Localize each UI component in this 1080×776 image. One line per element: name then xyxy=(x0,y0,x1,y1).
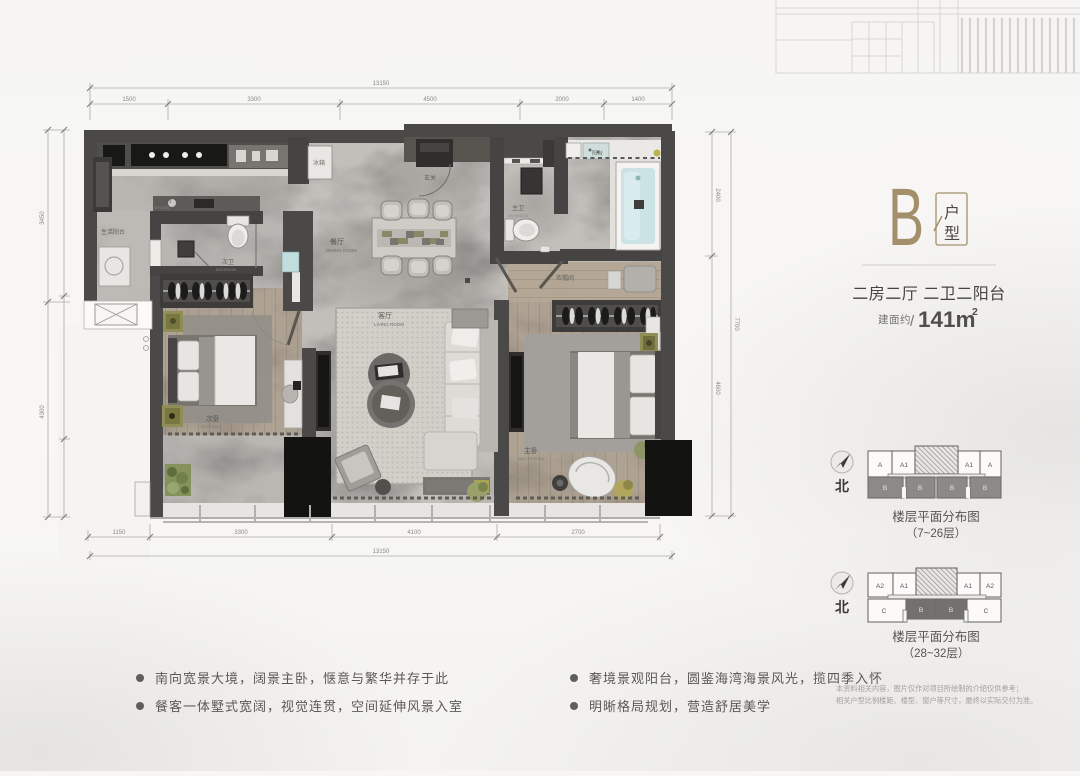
svg-text:2400: 2400 xyxy=(714,188,720,202)
svg-text:客厅: 客厅 xyxy=(378,311,392,320)
svg-text:B: B xyxy=(918,485,922,492)
svg-text:A2: A2 xyxy=(986,583,994,590)
svg-text:2: 2 xyxy=(972,306,978,318)
svg-text:阳台: 阳台 xyxy=(592,149,604,157)
svg-text:（28~32层）: （28~32层） xyxy=(903,647,970,660)
svg-text:B: B xyxy=(983,485,987,492)
svg-text:餐厅: 餐厅 xyxy=(330,237,344,246)
svg-text:型: 型 xyxy=(944,225,960,243)
svg-text:2700: 2700 xyxy=(571,530,585,536)
svg-text:/: / xyxy=(910,313,915,330)
svg-text:1500: 1500 xyxy=(122,97,136,103)
svg-text:厨房: 厨房 xyxy=(158,195,172,204)
svg-text:3300: 3300 xyxy=(247,97,261,103)
svg-text:主卧: 主卧 xyxy=(524,446,538,455)
svg-text:DINING ROOM: DINING ROOM xyxy=(326,248,357,253)
svg-text:1150: 1150 xyxy=(113,530,127,536)
svg-text:南向宽景大境，阔景主卧，惬意与繁华并存于此: 南向宽景大境，阔景主卧，惬意与繁华并存于此 xyxy=(155,671,449,686)
svg-text:奢境景观阳台，圆鉴海湾海景风光，揽四季入怀: 奢境景观阳台，圆鉴海湾海景风光，揽四季入怀 xyxy=(589,671,883,686)
svg-text:A1: A1 xyxy=(900,583,908,590)
svg-text:明晰格局规划，营造舒居美学: 明晰格局规划，营造舒居美学 xyxy=(589,699,771,714)
svg-text:B: B xyxy=(949,607,953,614)
svg-text:KITCHEN: KITCHEN xyxy=(154,206,170,210)
svg-text:4300: 4300 xyxy=(40,405,46,419)
svg-text:冰箱: 冰箱 xyxy=(313,159,325,167)
svg-text:生活阳台: 生活阳台 xyxy=(101,228,125,236)
svg-text:13150: 13150 xyxy=(373,549,390,555)
svg-text:B: B xyxy=(919,607,923,614)
svg-text:相关户型比例楼距、楼型、窗户等尺寸，最终以实际交付为准。: 相关户型比例楼距、楼型、窗户等尺寸，最终以实际交付为准。 xyxy=(836,696,1037,705)
svg-text:A: A xyxy=(988,462,993,469)
svg-text:2000: 2000 xyxy=(555,97,569,103)
svg-text:3450: 3450 xyxy=(40,211,46,225)
svg-text:7700: 7700 xyxy=(733,317,739,331)
svg-text:BATHROOM: BATHROOM xyxy=(216,268,236,272)
svg-text:B: B xyxy=(950,485,954,492)
svg-text:C: C xyxy=(984,608,989,615)
svg-text:次卧: 次卧 xyxy=(206,414,220,423)
svg-text:141m: 141m xyxy=(918,307,976,332)
svg-text:楼层平面分布图: 楼层平面分布图 xyxy=(892,629,980,644)
svg-text:B: B xyxy=(888,171,924,263)
svg-text:北: 北 xyxy=(835,478,849,494)
svg-text:BATHROOM: BATHROOM xyxy=(508,214,528,218)
svg-text:建面约: 建面约 xyxy=(878,313,911,326)
svg-text:楼层平面分布图: 楼层平面分布图 xyxy=(892,509,980,524)
svg-text:4100: 4100 xyxy=(407,530,421,536)
svg-text:A2: A2 xyxy=(876,583,884,590)
svg-text:A1: A1 xyxy=(965,462,973,469)
svg-text:MASTER ROOM: MASTER ROOM xyxy=(518,457,545,461)
svg-text:玄关: 玄关 xyxy=(424,174,436,182)
svg-text:BEDROOM: BEDROOM xyxy=(201,425,219,429)
svg-text:衣帽间: 衣帽间 xyxy=(556,274,574,282)
svg-text:C: C xyxy=(882,608,887,615)
svg-text:北: 北 xyxy=(835,599,849,615)
svg-text:3300: 3300 xyxy=(234,530,248,536)
svg-text:二房二厅 二卫二阳台: 二房二厅 二卫二阳台 xyxy=(852,285,1005,303)
svg-text:户: 户 xyxy=(944,204,960,222)
svg-text:4500: 4500 xyxy=(423,97,437,103)
svg-text:1400: 1400 xyxy=(631,97,645,103)
svg-text:次卫: 次卫 xyxy=(222,258,234,266)
svg-text:LIVING ROOM: LIVING ROOM xyxy=(374,322,404,327)
svg-text:主卫: 主卫 xyxy=(512,204,524,212)
svg-text:（7~26层）: （7~26层） xyxy=(906,527,966,540)
svg-text:A1: A1 xyxy=(900,462,908,469)
svg-text:A: A xyxy=(878,462,883,469)
svg-text:A1: A1 xyxy=(964,583,972,590)
svg-text:13150: 13150 xyxy=(373,81,390,87)
svg-text:餐客一体墅式宽阔，视觉连贯，空间延伸风景入室: 餐客一体墅式宽阔，视觉连贯，空间延伸风景入室 xyxy=(155,699,463,714)
svg-text:4600: 4600 xyxy=(714,381,720,395)
svg-text:B: B xyxy=(883,485,887,492)
